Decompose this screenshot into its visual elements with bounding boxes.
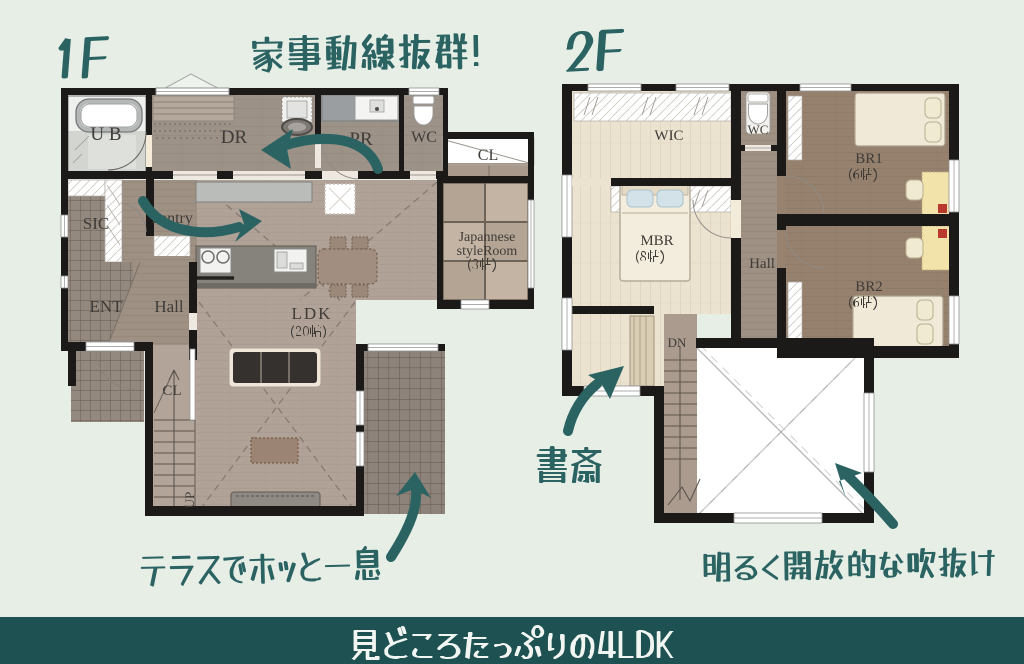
svg-text:U B: U B xyxy=(90,124,121,145)
svg-text:LDK: LDK xyxy=(292,304,333,323)
svg-text:UP: UP xyxy=(182,492,197,509)
svg-text:BR2: BR2 xyxy=(855,279,883,295)
svg-text:WC: WC xyxy=(411,129,437,146)
svg-text:BR1: BR1 xyxy=(855,151,883,167)
svg-text:DR: DR xyxy=(221,127,248,148)
svg-text:ENT: ENT xyxy=(89,297,123,316)
svg-text:styleRoom: styleRoom xyxy=(457,244,518,259)
svg-text:WC: WC xyxy=(748,122,769,137)
svg-text:DN: DN xyxy=(668,335,687,350)
svg-text:MBR: MBR xyxy=(640,233,673,249)
svg-text:Hall: Hall xyxy=(749,256,775,272)
svg-text:Hall: Hall xyxy=(154,297,184,316)
svg-text:SIC: SIC xyxy=(83,214,109,233)
svg-text:CL: CL xyxy=(478,147,498,164)
svg-text:Japannese: Japannese xyxy=(459,230,516,245)
svg-text:WIC: WIC xyxy=(654,128,683,144)
svg-text:CL: CL xyxy=(162,383,181,399)
